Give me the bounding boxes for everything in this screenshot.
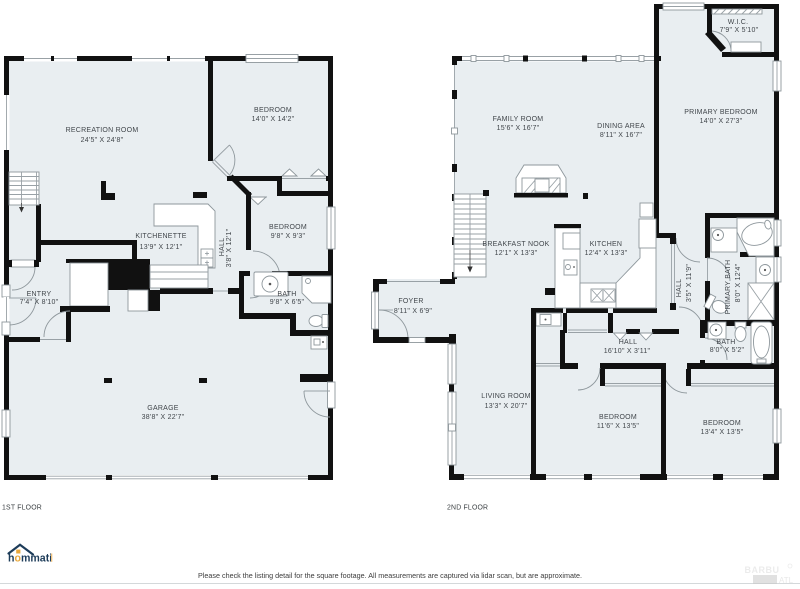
svg-text:FOYER: FOYER <box>398 298 423 305</box>
svg-text:13'4" X 13'5": 13'4" X 13'5" <box>701 429 744 436</box>
svg-text:W.I.C.: W.I.C. <box>728 19 749 26</box>
svg-text:38'8" X 22'7": 38'8" X 22'7" <box>142 414 185 421</box>
svg-text:2ND FLOOR: 2ND FLOOR <box>447 505 488 512</box>
svg-text:24'5" X 24'8": 24'5" X 24'8" <box>81 137 124 144</box>
svg-text:3'5" X 11'9": 3'5" X 11'9" <box>686 264 693 302</box>
svg-text:12'4" X 13'3": 12'4" X 13'3" <box>585 250 628 257</box>
svg-text:PRIMARY BEDROOM: PRIMARY BEDROOM <box>684 109 758 116</box>
svg-text:KITCHENETTE: KITCHENETTE <box>135 233 186 240</box>
svg-text:BEDROOM: BEDROOM <box>599 414 637 421</box>
svg-text:8'0" X 5'2": 8'0" X 5'2" <box>710 347 745 354</box>
svg-text:BEDROOM: BEDROOM <box>254 107 292 114</box>
svg-text:14'0" X 27'3": 14'0" X 27'3" <box>700 118 743 125</box>
svg-text:PRIMARY BATH: PRIMARY BATH <box>725 260 732 315</box>
svg-text:HALL: HALL <box>619 339 638 346</box>
svg-text:BATH: BATH <box>716 339 735 346</box>
svg-text:FAMILY ROOM: FAMILY ROOM <box>493 116 544 123</box>
svg-text:11'6" X 13'5": 11'6" X 13'5" <box>597 423 640 430</box>
svg-text:3'8" X 12'1": 3'8" X 12'1" <box>226 228 233 267</box>
svg-text:9'8" X 6'5": 9'8" X 6'5" <box>270 299 305 306</box>
svg-text:Please check the listing detai: Please check the listing detail for the … <box>198 571 582 580</box>
svg-text:15'6" X 16'7": 15'6" X 16'7" <box>497 125 540 132</box>
svg-text:16'10" X 3'11": 16'10" X 3'11" <box>604 348 651 355</box>
svg-text:HALL: HALL <box>676 279 683 298</box>
svg-text:8'0" X 12'4": 8'0" X 12'4" <box>735 263 742 302</box>
svg-text:7'9" X 5'10": 7'9" X 5'10" <box>720 27 759 34</box>
svg-text:BEDROOM: BEDROOM <box>703 420 741 427</box>
svg-text:KITCHEN: KITCHEN <box>590 241 622 248</box>
svg-text:ENTRY: ENTRY <box>27 291 52 298</box>
svg-text:BREAKFAST NOOK: BREAKFAST NOOK <box>482 241 549 248</box>
svg-text:BATH: BATH <box>277 291 296 298</box>
svg-text:GARAGE: GARAGE <box>147 405 179 412</box>
svg-text:DINING AREA: DINING AREA <box>597 123 645 130</box>
svg-text:hommati: hommati <box>8 553 52 565</box>
svg-text:LIVING ROOM: LIVING ROOM <box>481 393 530 400</box>
svg-text:12'1" X 13'3": 12'1" X 13'3" <box>495 250 538 257</box>
svg-text:BARBU: BARBU <box>745 565 780 575</box>
svg-text:13'9" X 12'1": 13'9" X 12'1" <box>140 244 183 251</box>
svg-text:1ST FLOOR: 1ST FLOOR <box>2 505 42 512</box>
svg-text:RECREATION ROOM: RECREATION ROOM <box>66 127 139 134</box>
svg-text:HALL: HALL <box>219 238 226 257</box>
svg-text:ATL: ATL <box>779 576 794 585</box>
svg-text:8'11" X 16'7": 8'11" X 16'7" <box>600 132 643 139</box>
svg-text:8'11" X 6'9": 8'11" X 6'9" <box>394 308 432 315</box>
svg-text:14'0" X 14'2": 14'0" X 14'2" <box>252 116 295 123</box>
svg-text:BEDROOM: BEDROOM <box>269 224 307 231</box>
svg-text:9'8" X 9'3": 9'8" X 9'3" <box>271 233 306 240</box>
svg-text:7'4" X 8'10": 7'4" X 8'10" <box>20 299 59 306</box>
svg-text:13'3" X 20'7": 13'3" X 20'7" <box>485 403 528 410</box>
